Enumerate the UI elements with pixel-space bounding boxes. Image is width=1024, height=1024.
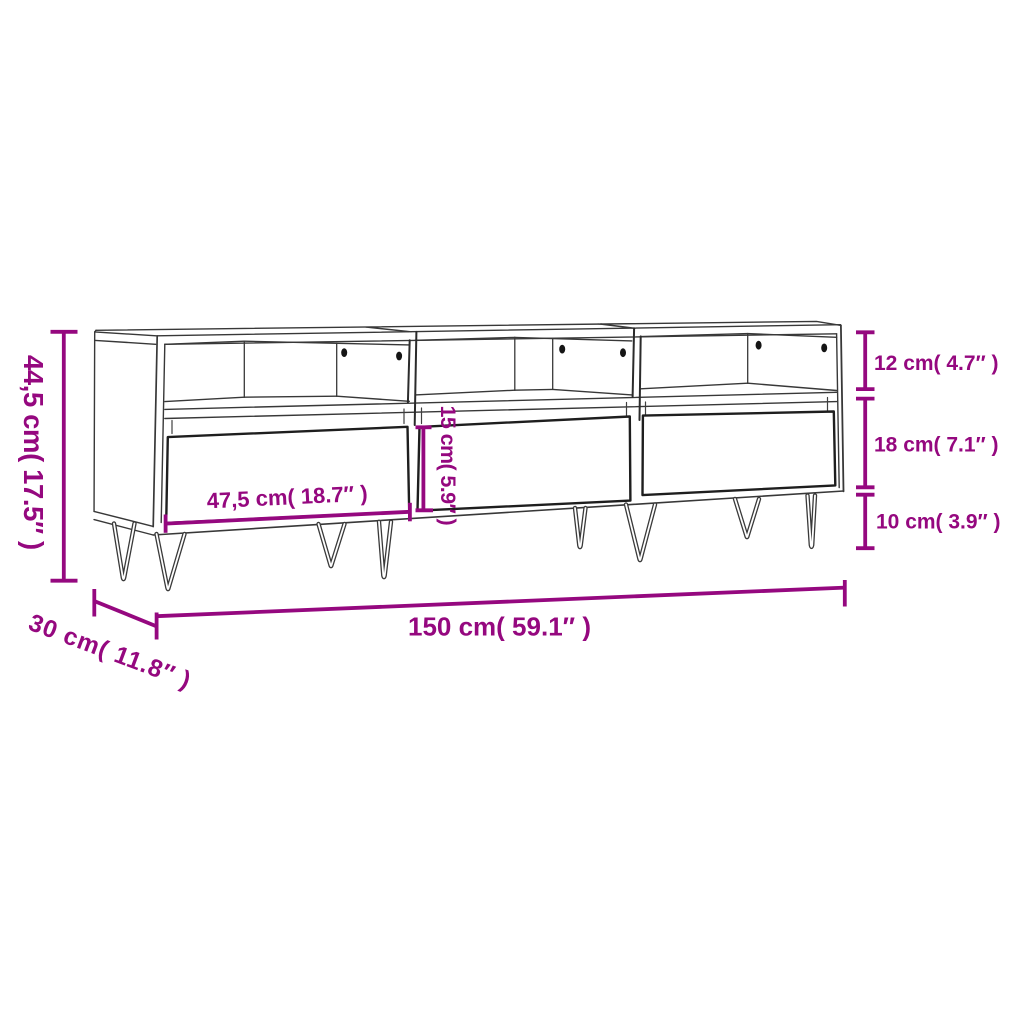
svg-text:12 cm( 4.7″ ): 12 cm( 4.7″ ) [874, 352, 998, 375]
svg-text:44,5 cm( 17.5″ ): 44,5 cm( 17.5″ ) [18, 355, 49, 550]
svg-text:15 cm( 5.9″ ): 15 cm( 5.9″ ) [436, 406, 460, 526]
svg-text:150 cm( 59.1″ ): 150 cm( 59.1″ ) [408, 612, 591, 642]
svg-text:10 cm( 3.9″ ): 10 cm( 3.9″ ) [876, 511, 1000, 534]
svg-text:18 cm( 7.1″ ): 18 cm( 7.1″ ) [874, 433, 998, 456]
